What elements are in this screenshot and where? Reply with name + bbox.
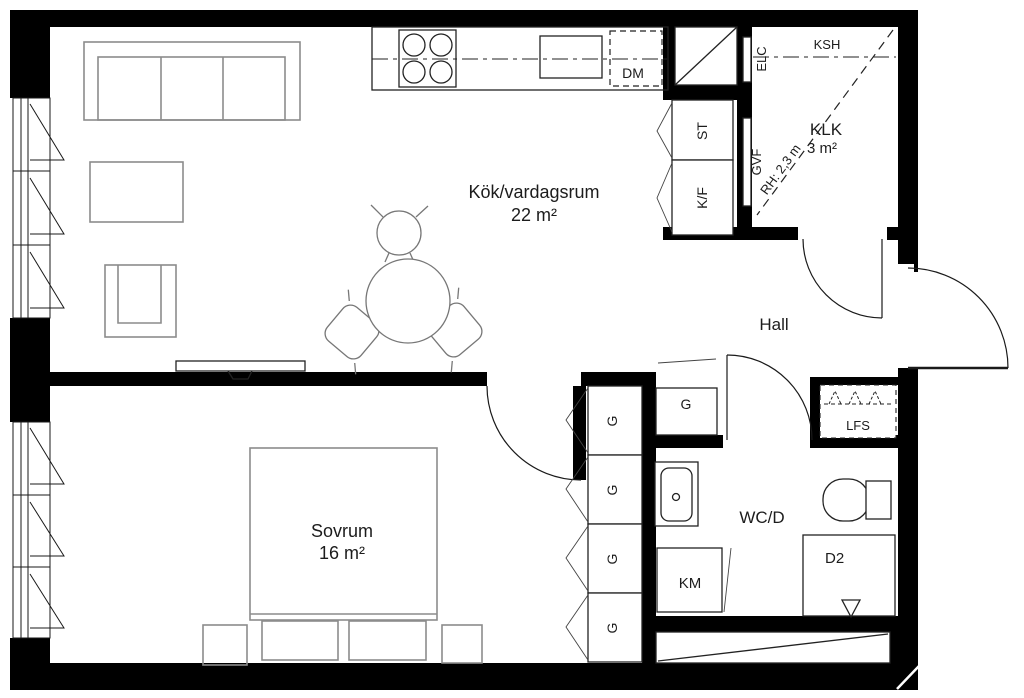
toilet-cistern-icon (866, 481, 891, 519)
dining-chair (371, 205, 428, 262)
wardrobe-door-swing (566, 595, 588, 660)
gvf-label: GVF (749, 149, 764, 176)
room-label-kitchen-living: Kök/vardagsrum (468, 182, 599, 202)
window-sash-icon (30, 428, 64, 484)
floor-plan: Kök/vardagsrum 22 m² Sovrum 16 m² Hall W… (0, 0, 1024, 698)
wall-top (10, 10, 918, 27)
closet-door-swing (658, 359, 716, 363)
wall-bedroom-divider-left (50, 372, 487, 386)
wall-lfs-top (820, 377, 898, 385)
wall-top-left-corner (10, 10, 50, 98)
bedroom-door-arc (487, 386, 581, 480)
kf-label: K/F (694, 187, 710, 209)
window-living-room (13, 98, 64, 318)
wall-wcd-south (642, 616, 898, 632)
sofa (84, 42, 300, 120)
wall-shaft-right (890, 632, 898, 663)
wall-klk-south-right (887, 227, 898, 240)
duct-shaft (675, 27, 737, 85)
entry-door-arc (908, 268, 1008, 368)
window-sash-icon (30, 104, 64, 160)
doors (487, 239, 1008, 480)
armchair (105, 265, 176, 337)
dishwasher-label: DM (622, 65, 644, 81)
wardrobe-label: G (604, 623, 620, 634)
kitchen-sink-icon (540, 36, 602, 78)
elc-panel (743, 37, 751, 82)
floor-plan-canvas: Kök/vardagsrum 22 m² Sovrum 16 m² Hall W… (0, 0, 1024, 698)
wall-wcd-north-left (656, 435, 723, 448)
nightstand-left (203, 625, 247, 665)
wall-right-upper (898, 10, 918, 272)
ksh-label: KSH (814, 37, 841, 52)
area-label-bedroom: 16 m² (319, 543, 365, 563)
dining-set (310, 205, 498, 374)
wall-bottom (10, 663, 918, 690)
pillow (349, 621, 426, 660)
room-label-wcd: WC/D (739, 508, 784, 527)
room-label-hall: Hall (759, 315, 788, 334)
room-label-klk: KLK (810, 120, 843, 139)
wall-right-lower (898, 367, 918, 690)
window-sash-icon (30, 252, 64, 308)
wardrobe-label: G (604, 485, 620, 496)
wall-left-middle (10, 318, 50, 422)
shower-label: D2 (825, 550, 844, 567)
window-bedroom (13, 422, 64, 638)
washing-machine-label: KM (679, 575, 702, 592)
window-sash-icon (30, 502, 64, 556)
cabinet-door-swing (657, 163, 672, 232)
km-door-swing (724, 548, 731, 612)
pillow (262, 621, 338, 660)
ceiling-height-label: RH: 2,3 m (757, 141, 804, 197)
wardrobe-label: G (604, 554, 620, 565)
wall-shaft-bottom (663, 85, 737, 100)
nightstand-right (442, 625, 482, 663)
elc-label: ELC (754, 46, 769, 71)
dining-table (366, 259, 450, 343)
toilet-bowl-icon (823, 479, 869, 521)
tall-cabinets (657, 100, 733, 235)
coffee-table (90, 162, 183, 222)
area-label-klk: 3 m² (807, 140, 837, 157)
window-sash-icon (30, 574, 64, 628)
window-sash-icon (30, 178, 64, 234)
bathroom-fixtures (655, 462, 895, 617)
klk-door-arc (803, 239, 882, 318)
wardrobe-label: G (604, 416, 620, 427)
area-label-kitchen-living: 22 m² (511, 205, 557, 225)
service-shaft (656, 632, 890, 663)
cabinet-door-swing (657, 103, 672, 158)
wardrobe-door-swing (566, 526, 588, 591)
tv-icon (176, 361, 305, 371)
wcd-door-arc (727, 355, 812, 440)
st-label: ST (694, 122, 710, 140)
floor-drain-icon (842, 600, 860, 617)
hall-closet-label: G (681, 396, 692, 412)
room-label-bedroom: Sovrum (311, 521, 373, 541)
lfs-label: LFS (846, 418, 870, 433)
